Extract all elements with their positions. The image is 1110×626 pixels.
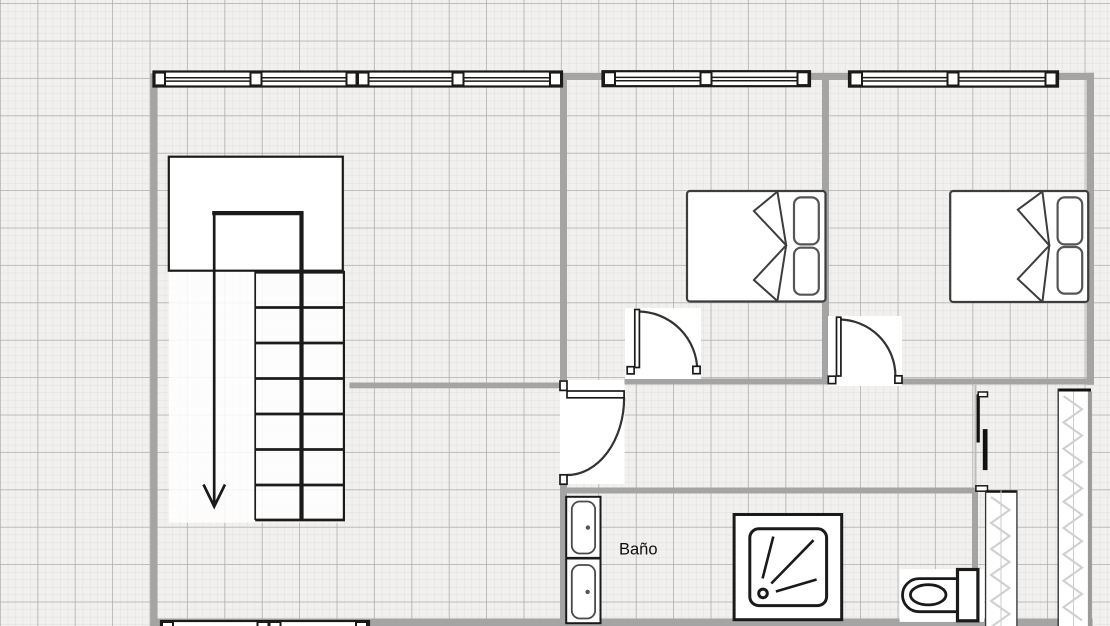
svg-text:Baño: Baño (619, 541, 658, 559)
